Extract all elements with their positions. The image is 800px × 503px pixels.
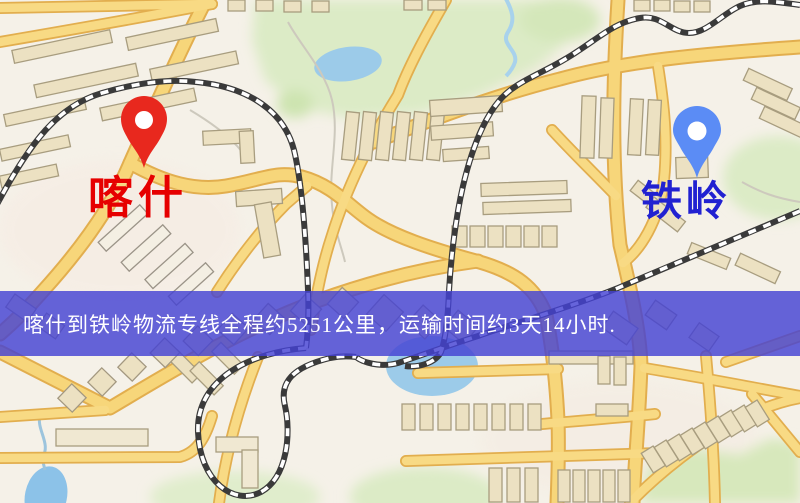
route-info-banner: 喀什到铁岭物流专线全程约5251公里，运输时间约3天14小时. xyxy=(0,291,800,356)
map-image xyxy=(0,0,800,503)
route-info-text: 喀什到铁岭物流专线全程约5251公里，运输时间约3天14小时. xyxy=(23,309,616,339)
map-screenshot: 喀什 铁岭 喀什到铁岭物流专线全程约5251公里，运输时间约3天14小时. xyxy=(0,0,800,503)
destination-label: 铁岭 xyxy=(641,181,731,222)
origin-pin-icon xyxy=(116,93,172,173)
destination-pin-icon xyxy=(668,103,726,183)
origin-label: 喀什 xyxy=(88,176,188,221)
